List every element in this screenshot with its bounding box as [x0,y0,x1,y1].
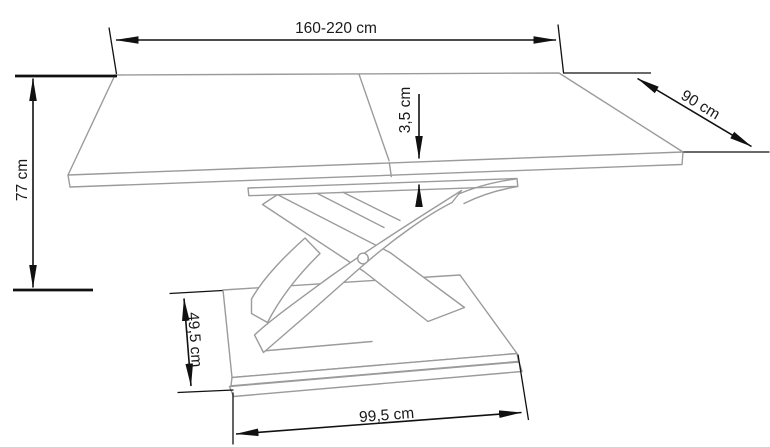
dim-base-depth: 49,5 cm [170,291,234,393]
dim-height-label: 77 cm [14,159,31,201]
dim-length: 160-220 cm [109,20,564,74]
table-line-art [68,73,683,397]
dimension-diagram: 160-220 cm 90 cm 3,5 cm 77 cm 49,5 cm 99… [0,0,770,447]
dim-base-width-label: 99,5 cm [358,405,414,426]
tabletop [68,73,683,187]
dim-length-label: 160-220 cm [295,20,377,37]
tabletop-outline [68,73,683,187]
dim-thickness-label: 3,5 cm [397,87,414,134]
dim-depth-label: 90 cm [678,87,723,123]
table-drawing-svg: 160-220 cm 90 cm 3,5 cm 77 cm 49,5 cm 99… [0,0,770,447]
dim-base-depth-label: 49,5 cm [184,312,205,368]
bolt-icon [358,253,369,264]
